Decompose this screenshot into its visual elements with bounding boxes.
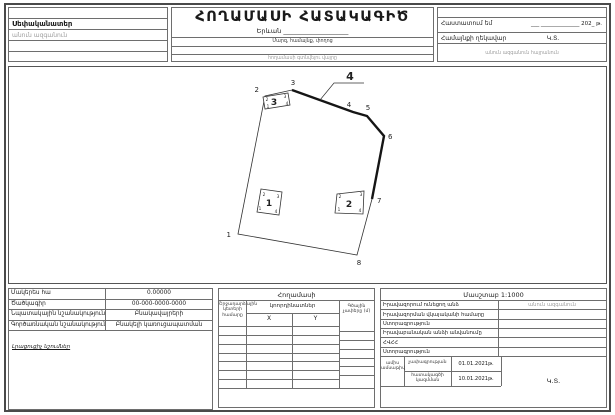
- head-name-placeholder: անուն ազգանուն հայրանուն: [438, 51, 606, 57]
- coordinates-table: Հողամասի Շրջադարձային կետերի համարը կոոր…: [218, 288, 375, 408]
- table-row: Մակերես հա 0.00000: [9, 289, 212, 300]
- vertex-label-4: 4: [347, 101, 352, 109]
- rights-row-label: Ստորագրություն: [383, 321, 496, 327]
- area-value: 0.00000: [106, 289, 212, 299]
- segment-callout-label: 4: [346, 70, 354, 83]
- divider: [381, 309, 606, 310]
- linear-col-header: Գծային չափերը (մ): [339, 304, 374, 315]
- building-2-corner-3: 3: [360, 192, 363, 197]
- building-3-corner-1: 1: [267, 104, 270, 109]
- divider: [339, 366, 374, 367]
- divider: [339, 375, 374, 376]
- cadastre-code-value: 00-000-0000-0000: [106, 300, 212, 310]
- building-3-corner-3: 3: [284, 94, 287, 99]
- building-2-corner-4: 4: [359, 208, 362, 213]
- divider: [381, 347, 606, 348]
- survey-date-value: 01.01.2021թ.: [451, 361, 501, 367]
- survey-date-label: չափագրության: [404, 360, 451, 365]
- target-purpose-value: Բնակավայրերի: [106, 310, 212, 320]
- building-2-label: 2: [346, 200, 352, 210]
- vertex-label-8: 8: [357, 259, 361, 267]
- building-2-corner-1: 1: [338, 207, 341, 212]
- table-row: Նպատակային նշանակություն Բնակավայրերի: [9, 310, 212, 321]
- divider: [219, 361, 339, 362]
- building-1-corner-2: 2: [263, 192, 266, 197]
- building-3-corner-4: 4: [286, 101, 289, 106]
- coords-table-title: Հողամասի: [219, 291, 374, 299]
- vertex-label-2: 2: [255, 86, 259, 94]
- head-label: Համայնքի ղեկավար: [441, 35, 541, 42]
- divider: [438, 32, 606, 33]
- coords-col-header: կոորդինատներ: [246, 303, 339, 309]
- owner-label: Սեփականատեր: [12, 20, 72, 28]
- dates-side-label: ամիս ամսաթիվ: [381, 361, 404, 372]
- building-3-label: 3: [271, 98, 277, 108]
- owner-empty-row-2: [9, 41, 167, 52]
- title-block: ՀՈՂԱՄԱՍԻ ՀԱՏԱԿԱԳԻԾ Երևան _______________…: [171, 7, 434, 62]
- divider: [339, 340, 374, 341]
- divider: [381, 300, 606, 301]
- approve-date-blank: ___ ______________ 202_ թ.: [500, 21, 602, 27]
- owner-empty-row-3: [9, 52, 167, 63]
- building-2-corner-2: 2: [339, 194, 342, 199]
- owner-name-placeholder: անուն ազգանուն: [12, 32, 67, 39]
- divider: [404, 371, 501, 372]
- rights-row-value: անուն ազգանուն: [498, 302, 606, 308]
- owner-label-row: Սեփականատեր: [9, 19, 167, 30]
- divider: [381, 328, 606, 329]
- building-3-corner-2: 2: [266, 97, 269, 102]
- divider: [381, 386, 501, 387]
- approval-block: Հաստատում եմ ___ ______________ 202_ թ. …: [437, 7, 607, 62]
- divider: [219, 388, 374, 389]
- scale-label: Մասշտաբ 1:1000: [381, 291, 606, 299]
- area-table: Մակերես հա 0.00000 Ծածկագիր 00-000-0000-…: [8, 288, 213, 410]
- cadastre-code-label: Ծածկագիր: [9, 300, 106, 310]
- vertex-label-1: 1: [227, 231, 231, 239]
- building-1-label: 1: [266, 199, 272, 209]
- vertex-label-5: 5: [366, 104, 370, 112]
- callout-leader-line: [320, 83, 364, 100]
- address-hint: Մարզ, համայնք, փողոց: [172, 39, 433, 45]
- divider: [339, 358, 374, 359]
- divider: [381, 337, 606, 338]
- y-col-header: Y: [292, 315, 339, 322]
- city-line: Երևան ____________________: [172, 27, 433, 35]
- divider: [219, 379, 339, 380]
- divider: [292, 313, 293, 388]
- plan-date-value: 10.01.2021թ.: [451, 376, 501, 382]
- owner-empty-row-1: [9, 8, 167, 19]
- page-title: ՀՈՂԱՄԱՍԻ ՀԱՏԱԿԱԳԻԾ: [172, 9, 433, 25]
- notes-caption: Լրացուցիչ նշումներ: [12, 344, 70, 350]
- point-col-header: Շրջադարձային կետերի համարը: [219, 302, 246, 318]
- building-1-corner-4: 4: [275, 209, 278, 214]
- head-seal: Կ.Տ.: [533, 35, 573, 42]
- divider: [172, 46, 433, 47]
- functional-purpose-label: Գործառնական նշանակություն: [9, 321, 106, 331]
- owner-block: Սեփականատեր անուն ազգանուն: [8, 7, 168, 62]
- building-1-corner-1: 1: [259, 206, 262, 211]
- vertex-label-3: 3: [291, 79, 295, 87]
- divider: [219, 370, 339, 371]
- plot-drawing: 4 3 2 3 4 1 1 2 3 4 1 2 2 3 4 1 1 2 3 4 …: [9, 67, 606, 283]
- functional-purpose-value: Բնակելի կառուցապատման: [106, 321, 212, 331]
- divider: [219, 300, 374, 301]
- divider: [438, 17, 606, 18]
- table-row: Գործառնական նշանակություն Բնակելի կառուց…: [9, 321, 212, 332]
- notes-area: Լրացուցիչ նշումներ: [9, 331, 212, 409]
- rights-row-label: Իրավաբանական անձի անվանումը: [383, 330, 496, 336]
- table-row: Ծածկագիր 00-000-0000-0000: [9, 300, 212, 311]
- divider: [219, 353, 339, 354]
- rights-row-label: ՀՎՀՀ: [383, 340, 496, 346]
- plan-date-label: հատակագծի կազմման: [404, 373, 451, 384]
- target-purpose-label: Նպատակային նշանակություն: [9, 310, 106, 320]
- divider: [219, 335, 339, 336]
- divider: [172, 37, 433, 38]
- divider: [219, 344, 339, 345]
- rights-row-label: Իրավազորման վկայականի համարը: [383, 312, 496, 318]
- building-1-corner-3: 3: [277, 194, 280, 199]
- x-col-header: X: [246, 315, 292, 322]
- owner-name-row: անուն ազգանուն: [9, 30, 167, 41]
- vertex-label-7: 7: [377, 197, 381, 205]
- area-label: Մակերես հա: [9, 289, 106, 299]
- rights-row-label: Իրավազորում ունեցող անձ: [383, 302, 496, 308]
- vertex-label-6: 6: [388, 133, 393, 141]
- divider: [339, 331, 374, 332]
- rights-row-label: Ստորագրություն: [383, 349, 496, 355]
- divider: [381, 319, 606, 320]
- rights-table: Մասշտաբ 1:1000 Իրավազորում ունեցող անձ ա…: [380, 288, 607, 408]
- divider: [438, 43, 606, 44]
- plan-drawing-area: 4 3 2 3 4 1 1 2 3 4 1 2 2 3 4 1 1 2 3 4 …: [8, 66, 607, 284]
- location-hint: հողամասի գտնվելու վայրը: [172, 56, 433, 62]
- divider: [339, 349, 374, 350]
- divider: [219, 326, 339, 327]
- seal-mark: Կ.Տ.: [501, 356, 606, 407]
